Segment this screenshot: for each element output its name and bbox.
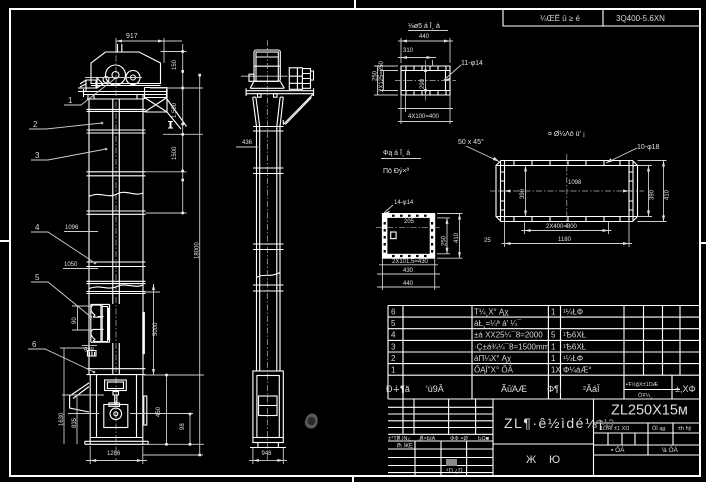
svg-text:440: 440 xyxy=(403,281,414,287)
svg-text:440: 440 xyxy=(419,34,430,40)
svg-text:1: 1 xyxy=(551,307,556,316)
svg-text:±,XΦ: ±,XΦ xyxy=(675,384,696,394)
svg-text:±á ΧΧ25¼¯8=2000: ±á ΧΧ25¼¯8=2000 xyxy=(474,331,543,340)
svg-text:250: 250 xyxy=(442,235,448,246)
svg-text:3: 3 xyxy=(391,342,396,351)
svg-text:835: 835 xyxy=(72,417,78,428)
svg-text:410: 410 xyxy=(665,189,671,200)
svg-text:ÃūΆÆ: ÃūΆÆ xyxy=(501,384,527,394)
svg-text:5: 5 xyxy=(391,319,396,328)
svg-text:14-φ14: 14-φ14 xyxy=(394,200,414,206)
svg-text:¹¼ŁΦ: ¹¼ŁΦ xyxy=(563,354,583,363)
svg-text:ŐĄЇ"Χ° ŐĂ: ŐĄЇ"Χ° ŐĂ xyxy=(474,366,514,375)
svg-text:450: 450 xyxy=(156,406,162,417)
svg-text:Πō Đý×ª: Πō Đý×ª xyxy=(383,168,410,175)
svg-text:Φ¶¡: Φ¶¡ xyxy=(547,384,562,394)
svg-text:ZL¶·ê½ìdé⅛¡: ZL¶·ê½ìdé⅛¡ xyxy=(504,415,604,431)
svg-text:6: 6 xyxy=(391,307,396,316)
svg-text:Τ¼¸Χ° Ąχ: Τ¼¸Χ° Ąχ xyxy=(474,307,509,316)
svg-text:1180: 1180 xyxy=(558,237,572,243)
svg-text:Φ¼áÆ°: Φ¼áÆ° xyxy=(563,366,592,375)
svg-text:390: 390 xyxy=(650,189,656,200)
svg-text:6: 6 xyxy=(32,340,37,349)
svg-text:1X: 1X xyxy=(551,366,561,375)
svg-text:¹Ѣ6ΧŁ: ¹Ѣ6ΧŁ xyxy=(563,331,587,340)
svg-text:ŐŦ¼¸: ŐŦ¼¸ xyxy=(638,392,652,399)
svg-text:5: 5 xyxy=(35,273,40,282)
svg-text:²ĂáЇ: ²ĂáЇ xyxy=(583,384,600,394)
svg-text:10-φ18: 10-φ18 xyxy=(637,144,660,151)
svg-text:1050: 1050 xyxy=(64,262,78,268)
svg-text:250: 250 xyxy=(373,70,379,81)
svg-text:310: 310 xyxy=(403,48,414,54)
svg-text:1: 1 xyxy=(68,96,73,105)
svg-text:·Ç±á¾¼¯8=1500mm: ·Ç±á¾¼¯8=1500mm xyxy=(474,342,550,351)
svg-text:Đ∔¶ă: Đ∔¶ă xyxy=(386,384,410,394)
svg-text:948: 948 xyxy=(262,451,273,457)
svg-text:1500: 1500 xyxy=(172,146,178,160)
svg-text:1ŐŘl ±1 XŊ: 1ŐŘl ±1 XŊ xyxy=(600,424,629,432)
svg-text:ſħ ЖЕ: ſħ ЖЕ xyxy=(397,444,413,450)
svg-text:3Q400-5.6ΧΝ: 3Q400-5.6ΧΝ xyxy=(616,14,665,23)
svg-text:′ú9Ă: ′ú9Ă xyxy=(426,384,444,394)
svg-text:1630: 1630 xyxy=(59,412,65,426)
svg-text:4X100=400: 4X100=400 xyxy=(408,114,440,120)
svg-text:2X125=250: 2X125=250 xyxy=(379,60,385,92)
svg-text:98: 98 xyxy=(180,423,186,430)
svg-text:1: 1 xyxy=(391,366,396,375)
svg-text:áΠ¼Χ° Ąχ: áΠ¼Χ° Ąχ xyxy=(474,354,512,363)
svg-text:1096: 1096 xyxy=(65,225,79,231)
svg-text:⁴Ŋ ¿Ŋ: ⁴Ŋ ¿Ŋ xyxy=(446,468,463,475)
svg-text:ZL250X15м: ZL250X15м xyxy=(611,403,688,419)
svg-text:1: 1 xyxy=(551,342,556,351)
svg-text:▪ ŐÁ: ▪ ŐÁ xyxy=(611,445,625,454)
svg-text:±⁴Τ℟ ΙΝ¿: ±⁴Τ℟ ΙΝ¿ xyxy=(388,434,411,442)
svg-text:436: 436 xyxy=(242,140,253,146)
svg-text:390: 390 xyxy=(520,188,526,199)
svg-text:ΦΦ ×Ø: ΦΦ ×Ø xyxy=(450,436,469,442)
svg-text:ŐĪ ąg: ŐĪ ąg xyxy=(652,425,665,432)
svg-text:90: 90 xyxy=(72,317,78,324)
svg-text:±ħ ħŷ: ±ħ ħŷ xyxy=(678,426,692,432)
svg-text:¹Ѣ6ΧŁ: ¹Ѣ6ΧŁ xyxy=(563,342,587,351)
svg-text:ˡá ŐÁ: ˡá ŐÁ xyxy=(662,445,678,454)
svg-text:5000: 5000 xyxy=(153,322,159,336)
svg-text:2: 2 xyxy=(391,354,396,363)
svg-text:¤ Ø¼Λō ū′ ¡: ¤ Ø¼Λō ū′ ¡ xyxy=(548,131,585,138)
svg-text:430: 430 xyxy=(403,268,414,274)
svg-text:205: 205 xyxy=(404,219,415,225)
svg-text:Ю: Ю xyxy=(549,454,560,466)
svg-text:3: 3 xyxy=(35,151,40,160)
svg-text:2X400=800: 2X400=800 xyxy=(546,224,578,230)
svg-text:⅛ø5 á Ī¸ á: ⅛ø5 á Ī¸ á xyxy=(408,22,440,30)
svg-text:4: 4 xyxy=(391,331,396,340)
svg-text:Ж: Ж xyxy=(526,454,536,466)
svg-text:18000: 18000 xyxy=(195,242,201,259)
svg-text:917: 917 xyxy=(126,33,138,40)
svg-text:1: 1 xyxy=(551,354,556,363)
svg-text:11-φ14: 11-φ14 xyxy=(461,60,483,67)
svg-text:2: 2 xyxy=(33,120,38,129)
svg-text:410: 410 xyxy=(454,232,460,243)
svg-text:5: 5 xyxy=(551,331,556,340)
svg-text:1.500: 1.500 xyxy=(172,102,178,118)
svg-text:„℟×ЫĄ: „℟×ЫĄ xyxy=(418,434,436,442)
svg-text:ЬΩ■: ЬΩ■ xyxy=(478,436,489,442)
svg-text:▪Ŧ½ĝX±1ŊÆ: ▪Ŧ½ĝX±1ŊÆ xyxy=(626,381,659,388)
svg-text:Фą á Ī¸ á: Фą á Ī¸ á xyxy=(383,149,410,157)
svg-text:25: 25 xyxy=(484,238,491,244)
svg-text:290: 290 xyxy=(420,78,426,89)
svg-text:1286: 1286 xyxy=(107,451,121,457)
svg-text:50 x 45°: 50 x 45° xyxy=(458,138,484,146)
svg-text:¼ŒË ū ≥ é: ¼ŒË ū ≥ é xyxy=(540,14,581,23)
svg-text:150: 150 xyxy=(172,59,178,70)
svg-text:áŁ¸=¼ª á′ ¼¯: áŁ¸=¼ª á′ ¼¯ xyxy=(474,319,522,328)
svg-text:1098: 1098 xyxy=(568,180,582,186)
svg-text:4: 4 xyxy=(35,223,40,232)
svg-text:¹¼ŁΦ: ¹¼ŁΦ xyxy=(563,307,583,316)
svg-text:2X101.5=430: 2X101.5=430 xyxy=(392,259,429,265)
